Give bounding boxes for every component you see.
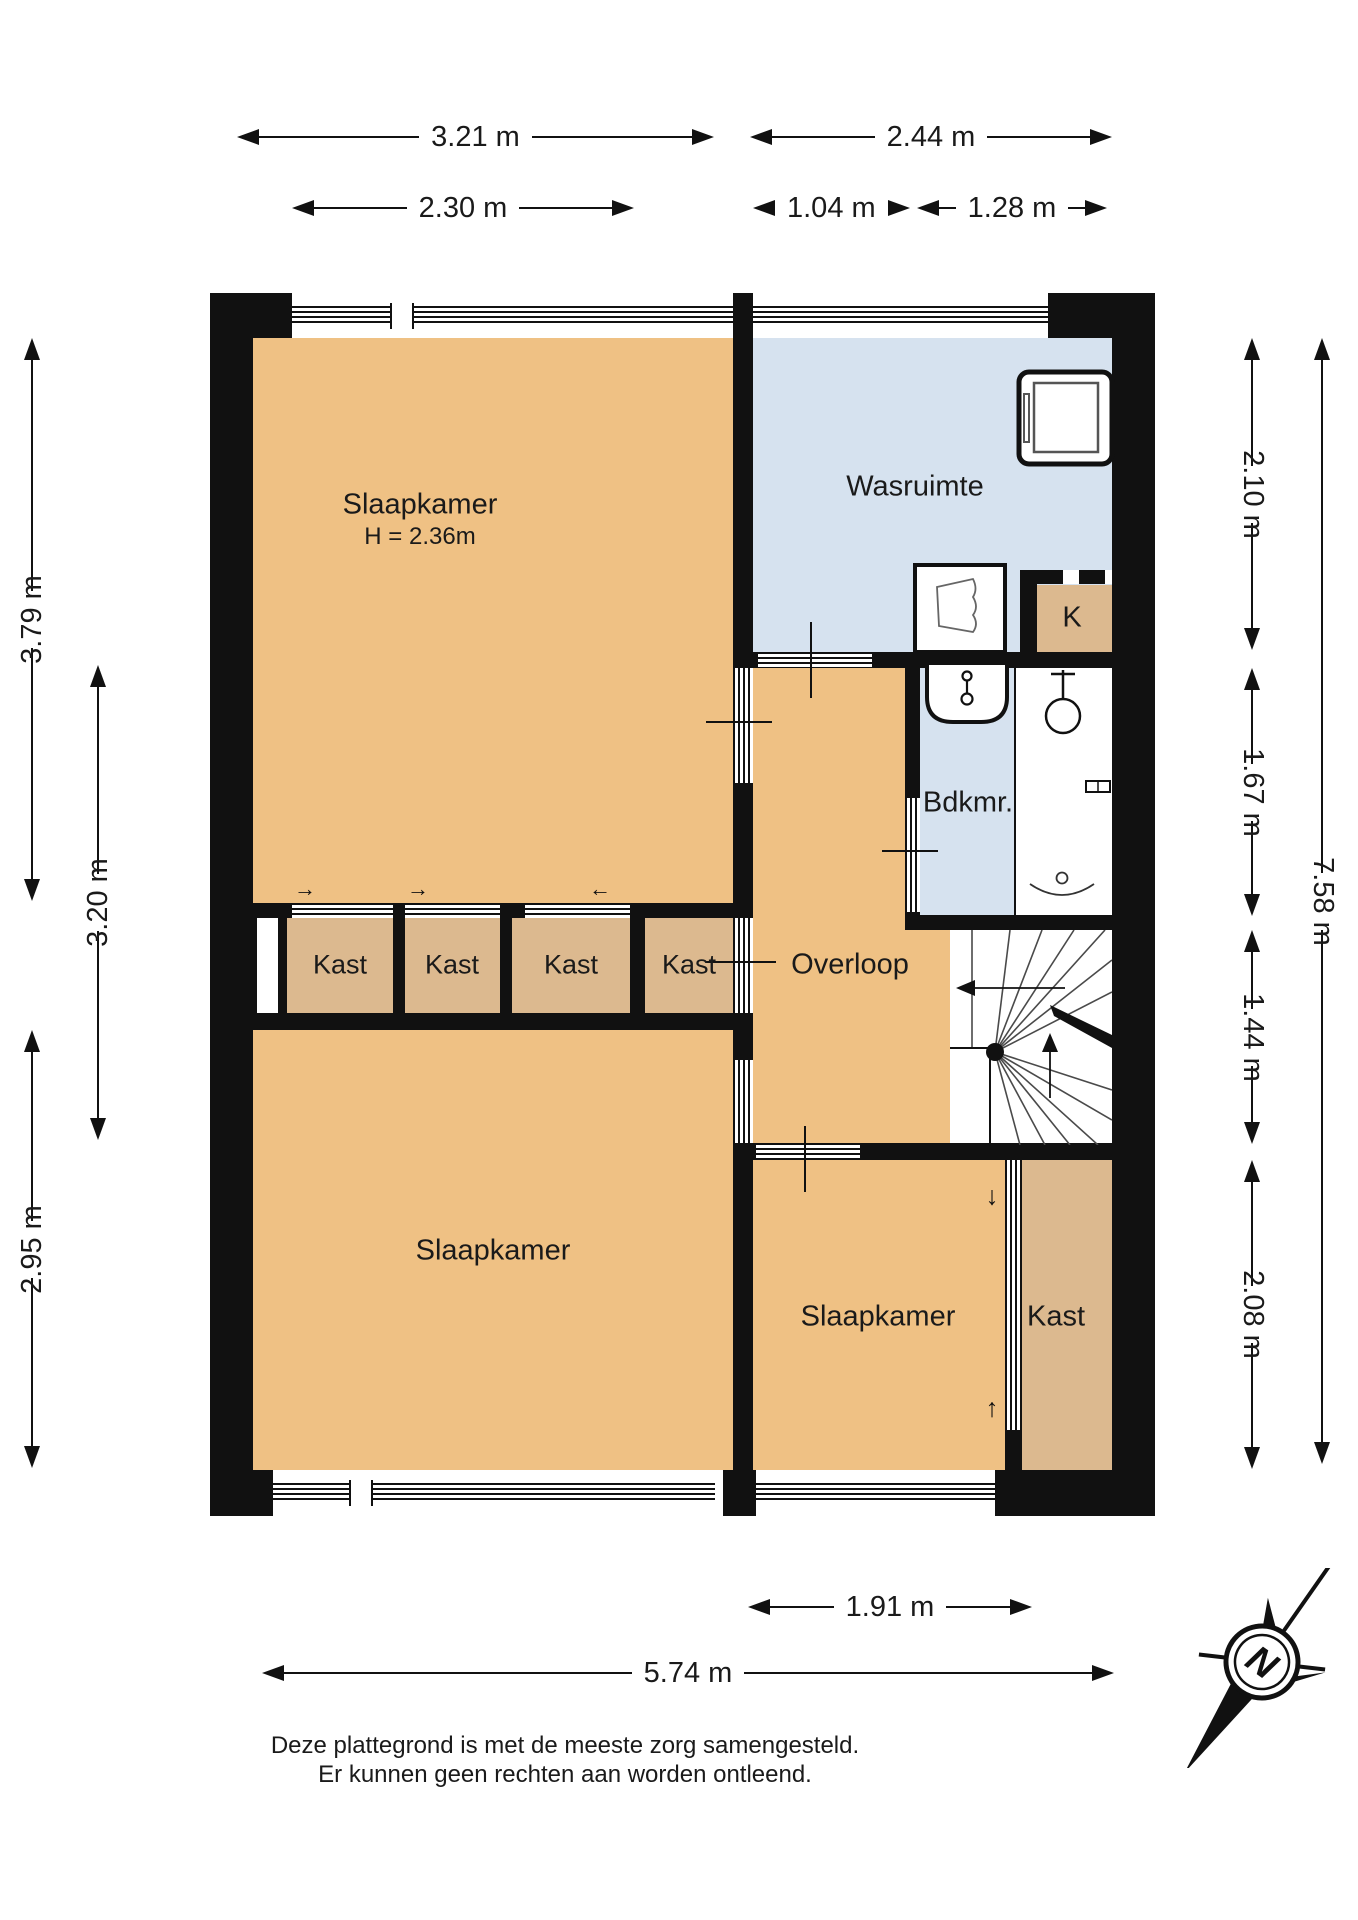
- dim-bottom-slaapkamer-width: 1.91 m: [748, 1592, 1032, 1622]
- label-slaapkamer-bottom-right: Slaapkamer: [801, 1301, 956, 1334]
- window-top-slaapkamer: [292, 306, 733, 326]
- door-slaapkamer-br: [756, 1143, 860, 1160]
- label-kast-3: Kast: [544, 950, 598, 981]
- wall-center-lower: [733, 1143, 753, 1470]
- staircase: [950, 930, 1112, 1145]
- label-ceiling-height: H = 2.36m: [364, 523, 475, 551]
- dim-left-inner-depth: 3.20 m: [83, 665, 113, 1140]
- wall-kast-divider-2: [500, 903, 512, 1030]
- wall-kast-br-bottom-nub: [1005, 1430, 1022, 1470]
- partition-slaapkamer-br-kast: [1005, 1160, 1022, 1430]
- dim-top-left-segment: 1.04 m: [753, 193, 907, 223]
- label-kast-1: Kast: [313, 950, 367, 981]
- label-wasruimte: Wasruimte: [846, 471, 984, 504]
- door-tick-badkamer: [882, 850, 938, 852]
- door-overloop-slaapkamer-bl: [733, 1060, 753, 1143]
- wall-left: [210, 293, 253, 1516]
- dim-right-total-depth: 7.58 m: [1307, 338, 1337, 1464]
- wall-kast-divider-3: [630, 903, 645, 1030]
- wall-kast-divider-1: [393, 903, 405, 1030]
- dim-top-slaapkamer-width: 3.21 m: [237, 122, 714, 152]
- wall-corner-bottom-right: [995, 1470, 1155, 1516]
- label-kast-bottom-right: Kast: [1027, 1301, 1085, 1334]
- wall-center-upper: [733, 338, 753, 668]
- wall-badkamer-bottom: [905, 915, 1112, 930]
- door-tick-kast4: [706, 961, 776, 963]
- dim-right-overloop-depth: 1.44 m: [1237, 930, 1267, 1144]
- wall-corner-bottom-left: [210, 1470, 273, 1516]
- door-kast-3: [525, 903, 630, 918]
- disclaimer-text: Deze plattegrond is met de meeste zorg s…: [271, 1731, 859, 1789]
- washing-machine-icon: [1015, 368, 1115, 468]
- door-arrow-kast1-icon: →: [294, 876, 316, 902]
- niche-kast-row: [257, 918, 278, 1013]
- boiler-icon: [913, 563, 1008, 655]
- dim-right-badkamer-depth: 1.67 m: [1237, 668, 1267, 916]
- dim-left-slaapkamer-top-depth: 3.79 m: [17, 338, 47, 901]
- room-fill-slaapkamer-top-left: [253, 338, 733, 903]
- disclaimer-line-1: Deze plattegrond is met de meeste zorg s…: [271, 1731, 859, 1760]
- door-arrow-kast2-icon: →: [407, 876, 429, 902]
- door-badkamer: [905, 798, 920, 912]
- dim-top-right-segment: 1.28 m: [917, 193, 1107, 223]
- window-bottom-slaapkamer-right: [756, 1483, 995, 1503]
- wall-k-closet-left: [1020, 570, 1037, 652]
- wall-center-mid: [733, 783, 753, 918]
- window-bottom-slaapkamer-left: [273, 1483, 715, 1503]
- sink-icon: [925, 661, 1009, 725]
- window-mullion-bottom: [349, 1480, 373, 1506]
- dim-left-slaapkamer-bottom-depth: 2.95 m: [17, 1030, 47, 1468]
- label-badkamer: Bdkmr.: [923, 787, 1013, 820]
- door-tick-slaapkamer-tl: [706, 721, 772, 723]
- wall-corner-top-left: [210, 293, 292, 338]
- wall-pier-top: [733, 293, 753, 338]
- room-fill-overloop-upper: [753, 668, 905, 930]
- window-top-wasruimte: [753, 306, 1048, 326]
- door-tick-slaapkamer-br: [804, 1126, 806, 1192]
- door-arrow-kast3-icon: ←: [589, 876, 611, 902]
- floor-plan: → → ← ↓ ↑ Slaapkamer H = 2.36m Wasruimte…: [0, 0, 1358, 1920]
- label-k-closet: K: [1062, 602, 1081, 635]
- k-closet-open-top: [1037, 570, 1112, 584]
- door-kast-1: [292, 903, 393, 918]
- wall-right: [1112, 293, 1155, 1516]
- door-arrow-kast-br-down-icon: ↓: [986, 1181, 999, 1212]
- dim-top-window-width: 2.30 m: [292, 193, 634, 223]
- door-tick-wasruimte: [810, 622, 812, 698]
- door-kast-2: [405, 903, 500, 918]
- wall-kast-row-bottom: [225, 1013, 753, 1030]
- dim-right-wasruimte-depth: 2.10 m: [1237, 338, 1267, 650]
- label-slaapkamer-top-left: Slaapkamer: [343, 489, 498, 522]
- compass-north-icon: N: [1180, 1568, 1350, 1768]
- dim-bottom-total-width: 5.74 m: [262, 1658, 1114, 1688]
- label-overloop: Overloop: [791, 949, 909, 982]
- door-slaapkamer-tl-overloop: [733, 668, 753, 783]
- door-wasruimte: [758, 652, 872, 668]
- door-arrow-kast-br-up-icon: ↑: [986, 1393, 999, 1424]
- door-kast4-overloop: [733, 918, 753, 1013]
- dim-right-slaapkamer-depth: 2.08 m: [1237, 1160, 1267, 1469]
- label-slaapkamer-bottom-left: Slaapkamer: [416, 1235, 571, 1268]
- shower-icon: [1014, 668, 1112, 915]
- window-mullion-top: [390, 303, 414, 329]
- dim-top-wasruimte-width: 2.44 m: [750, 122, 1112, 152]
- wall-pier-bottom: [723, 1470, 756, 1516]
- label-kast-2: Kast: [425, 950, 479, 981]
- label-kast-4: Kast: [662, 950, 716, 981]
- disclaimer-line-2: Er kunnen geen rechten aan worden ontlee…: [271, 1760, 859, 1789]
